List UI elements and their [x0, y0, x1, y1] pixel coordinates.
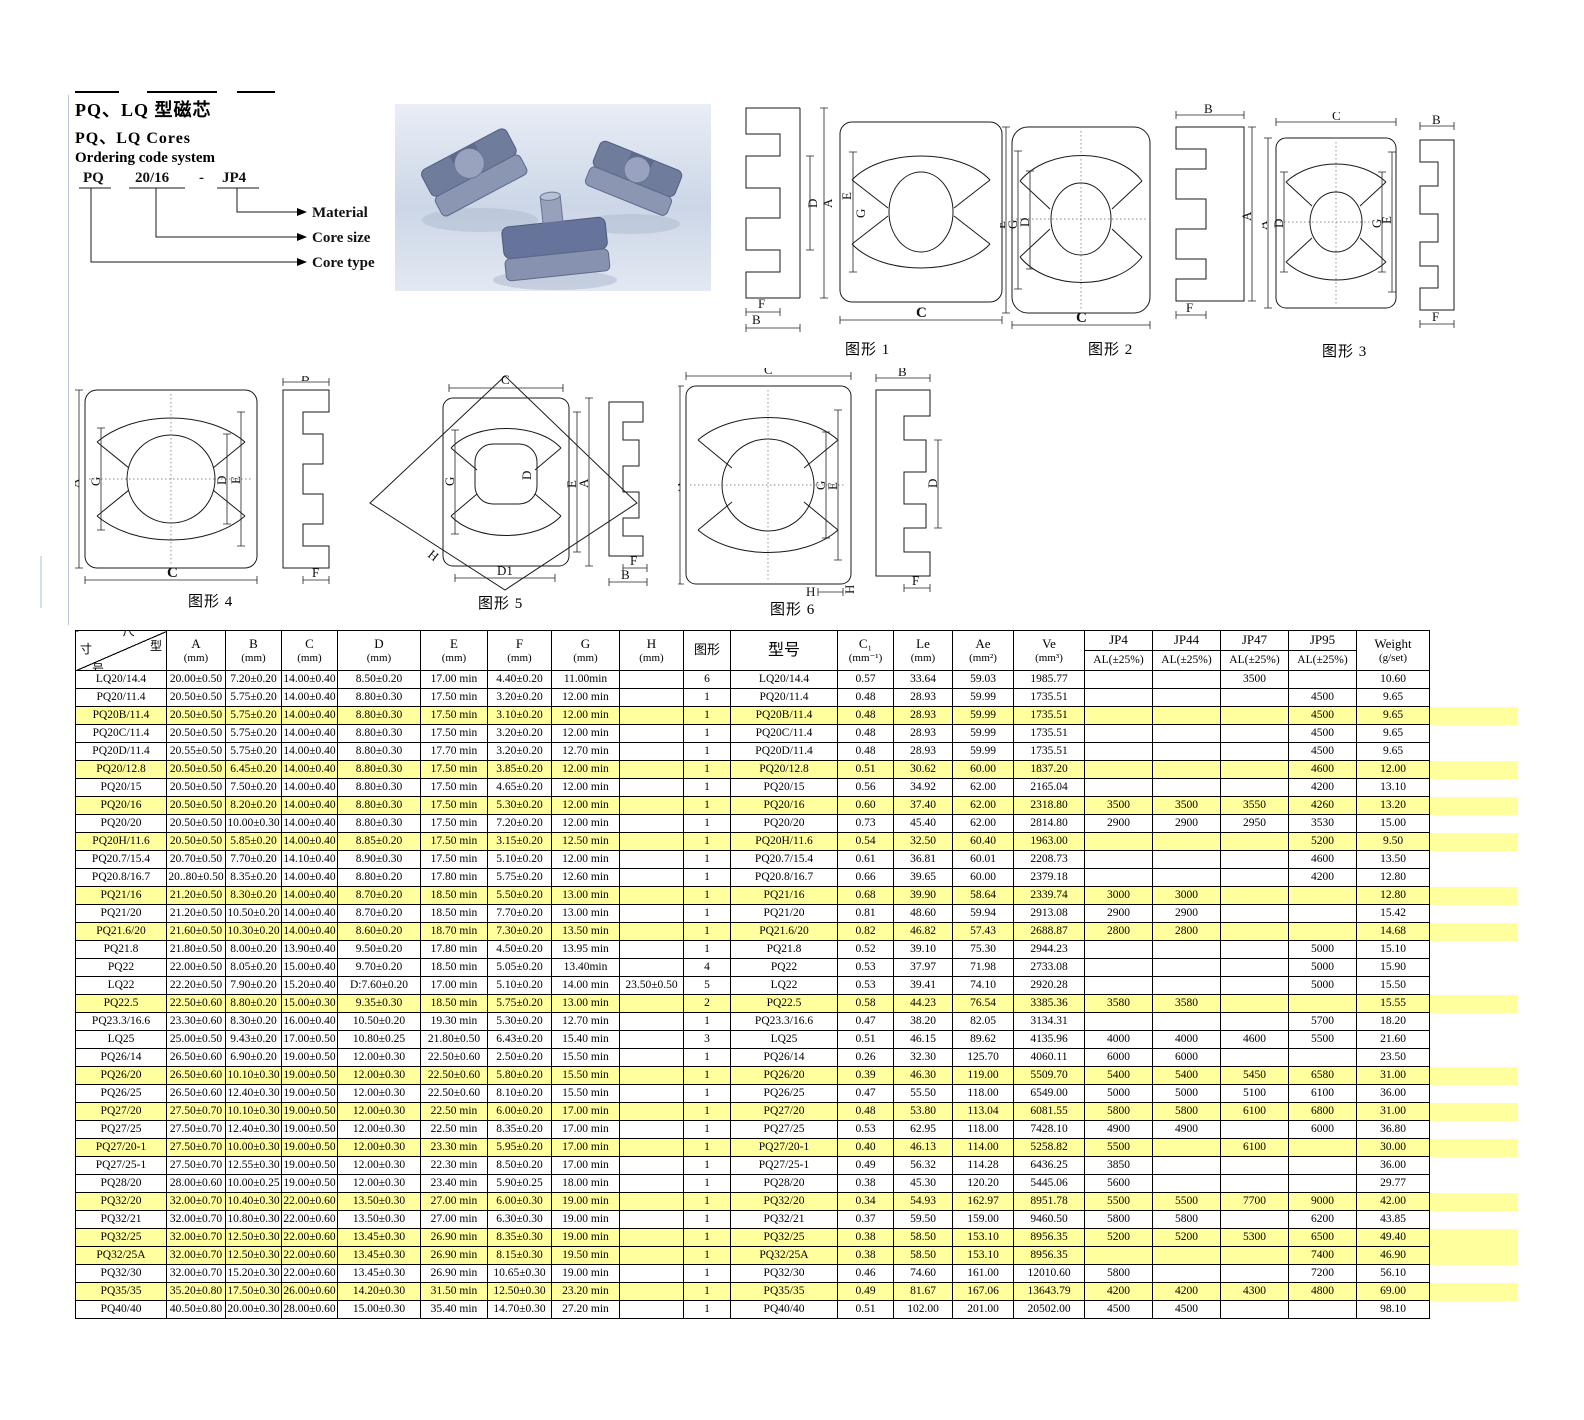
cell: [1221, 725, 1289, 743]
cell: 36.81: [894, 851, 953, 869]
cell: 1735.51: [1014, 725, 1085, 743]
cell: [1289, 1157, 1357, 1175]
table-row: PQ32/2532.00±0.7012.50±0.3022.00±0.6013.…: [76, 1229, 1519, 1247]
cell: 0.48: [838, 689, 894, 707]
figure-4-caption: 图形 4: [188, 590, 233, 611]
cell: 201.00: [953, 1301, 1014, 1319]
cell: [1153, 1175, 1221, 1193]
diagonal-header-char: 寸: [80, 643, 92, 656]
cell: PQ20C/11.4: [731, 725, 838, 743]
cell: 10.80±0.30: [226, 1211, 282, 1229]
cell: 0.40: [838, 1139, 894, 1157]
cell: 12.40±0.30: [226, 1085, 282, 1103]
cell: 1963.00: [1014, 833, 1085, 851]
cell: PQ40/40: [76, 1301, 167, 1319]
cell: [620, 1085, 684, 1103]
cell: 4500: [1289, 707, 1357, 725]
cell: 1: [684, 779, 731, 797]
cell: PQ27/20: [76, 1103, 167, 1121]
cell: 60.00: [953, 761, 1014, 779]
cell: [620, 995, 684, 1013]
cell: 13.45±0.30: [338, 1229, 421, 1247]
cell: 2339.74: [1014, 887, 1085, 905]
cell: 14.00±0.40: [282, 707, 338, 725]
cell: 114.28: [953, 1157, 1014, 1175]
cell: PQ32/25: [76, 1229, 167, 1247]
cell: 7400: [1289, 1247, 1357, 1265]
cell: [1289, 1301, 1357, 1319]
cell: 17.80 min: [421, 869, 488, 887]
cell: [1221, 1247, 1289, 1265]
cell: 21.80±0.50: [167, 941, 226, 959]
cell: 13.95 min: [552, 941, 620, 959]
cell: 11.00min: [552, 671, 620, 689]
col-header-JP95: JP95: [1289, 631, 1357, 651]
figure-3-caption: 图形 3: [1322, 340, 1367, 361]
dim-label: G: [442, 477, 457, 486]
highlight-extension: [1430, 1139, 1519, 1157]
cell: 1: [684, 941, 731, 959]
cell: [1085, 1013, 1153, 1031]
col-header-H: H(mm): [620, 631, 684, 671]
cell: 0.68: [838, 887, 894, 905]
dim-label: C: [167, 565, 178, 581]
cell: 7.70±0.20: [226, 851, 282, 869]
dim-label: F: [912, 573, 919, 588]
cell: 5500: [1153, 1193, 1221, 1211]
col-header-JP44: JP44: [1153, 631, 1221, 651]
cell: 44.23: [894, 995, 953, 1013]
cell: 19.30 min: [421, 1013, 488, 1031]
cell: [1289, 905, 1357, 923]
cell: [620, 1265, 684, 1283]
cell: PQ26/20: [731, 1067, 838, 1085]
cell: PQ20H/11.6: [76, 833, 167, 851]
cell: 12.80: [1357, 887, 1430, 905]
cell: [620, 1031, 684, 1049]
cell: 1: [684, 1157, 731, 1175]
cell: 25.00±0.50: [167, 1031, 226, 1049]
cell: 1: [684, 869, 731, 887]
cell: 12.00±0.30: [338, 1157, 421, 1175]
cell: 15.50: [1357, 977, 1430, 995]
cell: 4260: [1289, 797, 1357, 815]
cell: 60.40: [953, 833, 1014, 851]
cell: 2379.18: [1014, 869, 1085, 887]
cell: 4200: [1289, 779, 1357, 797]
code-dash: -: [199, 170, 204, 186]
cell: 4200: [1085, 1283, 1153, 1301]
cell: 58.50: [894, 1229, 953, 1247]
cell: 7.30±0.20: [488, 923, 552, 941]
figure-6-drawing: C A G E H H B D F: [678, 368, 950, 598]
cell: 15.40 min: [552, 1031, 620, 1049]
cell: 22.50 min: [421, 1103, 488, 1121]
highlight-extension: [1430, 1085, 1519, 1103]
cell: [1153, 833, 1221, 851]
cell: [620, 851, 684, 869]
dim-label: H: [806, 584, 815, 598]
cell: D:7.60±0.20: [338, 977, 421, 995]
col-subheader-al: AL(±25%): [1289, 651, 1357, 671]
dim-label: A: [820, 198, 835, 208]
cell: 14.00±0.40: [282, 725, 338, 743]
table-row: PQ21.6/2021.60±0.5010.30±0.2014.00±0.408…: [76, 923, 1519, 941]
cell: [1221, 959, 1289, 977]
cell: 32.00±0.70: [167, 1193, 226, 1211]
cell: 59.94: [953, 905, 1014, 923]
cell: 12.00: [1357, 761, 1430, 779]
cell: [1221, 923, 1289, 941]
cell: 19.00 min: [552, 1229, 620, 1247]
cell: [1153, 869, 1221, 887]
cell: 1: [684, 905, 731, 923]
cell: 26.90 min: [421, 1229, 488, 1247]
highlight-extension: [1430, 671, 1519, 689]
cell: 35.40 min: [421, 1301, 488, 1319]
cell: 14.00±0.40: [282, 905, 338, 923]
cell: 39.10: [894, 941, 953, 959]
highlight-extension: [1430, 959, 1519, 977]
cell: 8.80±0.20: [338, 869, 421, 887]
cell: 8.70±0.20: [338, 905, 421, 923]
code-core-size: 20/16: [135, 170, 170, 186]
cell: 0.47: [838, 1085, 894, 1103]
col-subheader-al: AL(±25%): [1221, 651, 1289, 671]
col-header-型号: 型号: [731, 631, 838, 671]
cell: 36.80: [1357, 1121, 1430, 1139]
cell: 39.90: [894, 887, 953, 905]
cell: 2913.08: [1014, 905, 1085, 923]
cell: 6.43±0.20: [488, 1031, 552, 1049]
cell: 14.00±0.40: [282, 815, 338, 833]
cell: 38.20: [894, 1013, 953, 1031]
cell: [1221, 869, 1289, 887]
cell: 14.00±0.40: [282, 761, 338, 779]
cell: [1221, 707, 1289, 725]
cell: PQ22.5: [731, 995, 838, 1013]
cell: 5000: [1289, 941, 1357, 959]
cell: 7.20±0.20: [488, 815, 552, 833]
cell: 12.00±0.30: [338, 1067, 421, 1085]
cell: 17.50 min: [421, 797, 488, 815]
dim-label: B: [301, 376, 310, 384]
cell: 15.00±0.30: [282, 995, 338, 1013]
cell: PQ32/25: [731, 1229, 838, 1247]
cell: 12.00±0.30: [338, 1121, 421, 1139]
cell: [1289, 671, 1357, 689]
cell: 46.90: [1357, 1247, 1430, 1265]
cell: [1153, 671, 1221, 689]
cell: 17.50 min: [421, 689, 488, 707]
cell: 49.40: [1357, 1229, 1430, 1247]
cell: [1085, 671, 1153, 689]
cell: 22.50±0.60: [167, 995, 226, 1013]
cell: [620, 689, 684, 707]
table-row: PQ32/3032.00±0.7015.20±0.3022.00±0.6013.…: [76, 1265, 1519, 1283]
cell: 34.92: [894, 779, 953, 797]
cell: 18.50 min: [421, 959, 488, 977]
col-header-G: G(mm): [552, 631, 620, 671]
cell: 8.80±0.30: [338, 761, 421, 779]
cell: 17.00 min: [552, 1139, 620, 1157]
cell: 26.90 min: [421, 1247, 488, 1265]
table-row: PQ27/2027.50±0.7010.10±0.3019.00±0.5012.…: [76, 1103, 1519, 1121]
cell: 23.30±0.60: [167, 1013, 226, 1031]
cell: 20.50±0.50: [167, 761, 226, 779]
cell: 2900: [1153, 905, 1221, 923]
col-subheader-al: AL(±25%): [1085, 651, 1153, 671]
dim-label: A: [1262, 220, 1270, 230]
col-header-A: A(mm): [167, 631, 226, 671]
cell: PQ23.3/16.6: [76, 1013, 167, 1031]
cell: 8.30±0.20: [226, 887, 282, 905]
table-row: PQ20/12.820.50±0.506.45±0.2014.00±0.408.…: [76, 761, 1519, 779]
cell: 23.20 min: [552, 1283, 620, 1301]
cell: 8.35±0.20: [226, 869, 282, 887]
cell: 3000: [1085, 887, 1153, 905]
cell: [620, 1157, 684, 1175]
cell: 6000: [1085, 1049, 1153, 1067]
overline: [75, 91, 119, 93]
dim-label: B: [898, 368, 907, 379]
cell: 6.00±0.30: [488, 1193, 552, 1211]
cell: [1221, 761, 1289, 779]
cell: 9.43±0.20: [226, 1031, 282, 1049]
cell: 3850: [1085, 1157, 1153, 1175]
cell: [620, 1301, 684, 1319]
cell: LQ25: [76, 1031, 167, 1049]
cell: 8.80±0.30: [338, 815, 421, 833]
cell: 19.00±0.50: [282, 1157, 338, 1175]
cell: 102.00: [894, 1301, 953, 1319]
cell: 20.55±0.50: [167, 743, 226, 761]
cell: [1221, 1121, 1289, 1139]
cell: 0.39: [838, 1067, 894, 1085]
overline: [237, 91, 275, 93]
cell: [1085, 977, 1153, 995]
cell: PQ27/20-1: [76, 1139, 167, 1157]
cell: 12.70 min: [552, 1013, 620, 1031]
cell: PQ20.7/15.4: [731, 851, 838, 869]
cell: 27.50±0.70: [167, 1157, 226, 1175]
diagonal-header-char: 尺: [123, 631, 135, 639]
cell: 10.50±0.20: [338, 1013, 421, 1031]
cell: 15.20±0.30: [226, 1265, 282, 1283]
cell: 1: [684, 797, 731, 815]
cell: 28.93: [894, 707, 953, 725]
highlight-extension: [1430, 725, 1519, 743]
cell: 5.05±0.20: [488, 959, 552, 977]
table-row: PQ27/2527.50±0.7012.40±0.3019.00±0.5012.…: [76, 1121, 1519, 1139]
cell: 6800: [1289, 1103, 1357, 1121]
cell: [620, 797, 684, 815]
cell: 12.40±0.30: [226, 1121, 282, 1139]
cell: 12.70 min: [552, 743, 620, 761]
cell: 0.73: [838, 815, 894, 833]
cell: 1: [684, 1139, 731, 1157]
cell: 2800: [1153, 923, 1221, 941]
table-row: PQ2222.00±0.508.05±0.2015.00±0.409.70±0.…: [76, 959, 1519, 977]
cell: [1221, 689, 1289, 707]
cell: 23.40 min: [421, 1175, 488, 1193]
cell: 21.60±0.50: [167, 923, 226, 941]
cell: 4200: [1153, 1283, 1221, 1301]
cell: [620, 779, 684, 797]
cell: 5800: [1085, 1211, 1153, 1229]
cell: [1153, 851, 1221, 869]
cell: PQ20/11.4: [76, 689, 167, 707]
cell: [620, 1139, 684, 1157]
cell: 1: [684, 887, 731, 905]
cell: LQ20/14.4: [731, 671, 838, 689]
cell: 10.50±0.20: [226, 905, 282, 923]
cell: 0.47: [838, 1013, 894, 1031]
cell: [1221, 995, 1289, 1013]
cell: 20.50±0.50: [167, 779, 226, 797]
cell: 59.99: [953, 743, 1014, 761]
cell: 2208.73: [1014, 851, 1085, 869]
cell: 32.00±0.70: [167, 1211, 226, 1229]
figure-5-drawing: C G D E A H D1 F B: [355, 368, 651, 594]
table-row: PQ21/2021.20±0.5010.50±0.2014.00±0.408.7…: [76, 905, 1519, 923]
cell: 1: [684, 815, 731, 833]
cell: 82.05: [953, 1013, 1014, 1031]
cell: [1085, 869, 1153, 887]
cell: [1153, 743, 1221, 761]
cell: PQ28/20: [731, 1175, 838, 1193]
cell: 1735.51: [1014, 707, 1085, 725]
cell: 20502.00: [1014, 1301, 1085, 1319]
cell: 37.97: [894, 959, 953, 977]
cell: 1: [684, 833, 731, 851]
cell: 5700: [1289, 1013, 1357, 1031]
cell: [1221, 1211, 1289, 1229]
cell: 30.00: [1357, 1139, 1430, 1157]
cell: 14.10±0.40: [282, 851, 338, 869]
dim-label: E: [839, 192, 854, 200]
label-material: Material: [312, 205, 368, 221]
table-row: LQ2222.20±0.507.90±0.2015.20±0.40D:7.60±…: [76, 977, 1519, 995]
cell: [1221, 1175, 1289, 1193]
highlight-extension: [1430, 833, 1519, 851]
dim-label: A: [678, 482, 683, 492]
cell: [1153, 707, 1221, 725]
cell: LQ20/14.4: [76, 671, 167, 689]
cell: 2733.08: [1014, 959, 1085, 977]
dim-label: A: [1239, 211, 1254, 221]
cell: 5000: [1289, 977, 1357, 995]
cell: PQ21/20: [731, 905, 838, 923]
col-header-JP47: JP47: [1221, 631, 1289, 651]
cell: 14.00±0.40: [282, 869, 338, 887]
cell: 17.50 min: [421, 725, 488, 743]
cell: 2944.23: [1014, 941, 1085, 959]
highlight-extension: [1430, 761, 1519, 779]
table-row: PQ32/2032.00±0.7010.40±0.3022.00±0.6013.…: [76, 1193, 1519, 1211]
cell: 8.80±0.30: [338, 725, 421, 743]
cell: [1153, 1013, 1221, 1031]
cell: [1153, 725, 1221, 743]
cell: PQ20.7/15.4: [76, 851, 167, 869]
cell: 118.00: [953, 1085, 1014, 1103]
cell: 58.64: [953, 887, 1014, 905]
cell: 4500: [1153, 1301, 1221, 1319]
cell: 4.65±0.20: [488, 779, 552, 797]
cell: [1289, 1049, 1357, 1067]
cell: 27.50±0.70: [167, 1103, 226, 1121]
cell: 0.82: [838, 923, 894, 941]
page-title-en: PQ、LQ Cores: [75, 124, 191, 148]
cell: [1085, 779, 1153, 797]
cell: 22.00±0.60: [282, 1265, 338, 1283]
cell: 3.15±0.20: [488, 833, 552, 851]
cell: 13.50±0.30: [338, 1193, 421, 1211]
cell: 6436.25: [1014, 1157, 1085, 1175]
cell: 19.00 min: [552, 1265, 620, 1283]
cell: 0.51: [838, 761, 894, 779]
cell: 54.93: [894, 1193, 953, 1211]
cell: 0.51: [838, 1301, 894, 1319]
cell: 5: [684, 977, 731, 995]
cell: 17.00 min: [552, 1103, 620, 1121]
cell: 19.00±0.50: [282, 1139, 338, 1157]
table-row: PQ20.8/16.720..80±0.508.35±0.2014.00±0.4…: [76, 869, 1519, 887]
table-row: LQ2525.00±0.509.43±0.2017.00±0.5010.80±0…: [76, 1031, 1519, 1049]
cell: PQ32/20: [76, 1193, 167, 1211]
cell: [1153, 1265, 1221, 1283]
cell: 14.00±0.40: [282, 743, 338, 761]
cell: 5258.82: [1014, 1139, 1085, 1157]
cell: 22.00±0.60: [282, 1211, 338, 1229]
cell: 4: [684, 959, 731, 977]
cell: 0.53: [838, 959, 894, 977]
cell: 18.50 min: [421, 887, 488, 905]
cell: [1289, 887, 1357, 905]
cell: 7.20±0.20: [226, 671, 282, 689]
highlight-extension: [1430, 1211, 1519, 1229]
cell: [620, 1013, 684, 1031]
cell: 48.60: [894, 905, 953, 923]
cell: 12.00 min: [552, 725, 620, 743]
cell: 14.00±0.40: [282, 797, 338, 815]
highlight-extension: [1430, 1049, 1519, 1067]
cell: 3.85±0.20: [488, 761, 552, 779]
cell: 5000: [1289, 959, 1357, 977]
highlight-extension: [1430, 1301, 1519, 1319]
cell: 1985.77: [1014, 671, 1085, 689]
cell: 1: [684, 1067, 731, 1085]
cell: 89.62: [953, 1031, 1014, 1049]
table-row: PQ20/1520.50±0.507.50±0.2014.00±0.408.80…: [76, 779, 1519, 797]
cell: 13.00 min: [552, 905, 620, 923]
cell: PQ35/35: [731, 1283, 838, 1301]
cell: 13.00 min: [552, 887, 620, 905]
cell: PQ20H/11.6: [731, 833, 838, 851]
cell: 0.49: [838, 1157, 894, 1175]
cell: 9.65: [1357, 689, 1430, 707]
cell: 15.20±0.40: [282, 977, 338, 995]
cell: 23.30 min: [421, 1139, 488, 1157]
cell: 9.65: [1357, 707, 1430, 725]
cell: [620, 923, 684, 941]
dim-model-diagonal-header: 尺型寸号: [76, 631, 167, 671]
cell: 35.20±0.80: [167, 1283, 226, 1301]
cell: 5.95±0.20: [488, 1139, 552, 1157]
cell: [620, 1121, 684, 1139]
cell: 13.10: [1357, 779, 1430, 797]
cell: [1153, 1157, 1221, 1175]
